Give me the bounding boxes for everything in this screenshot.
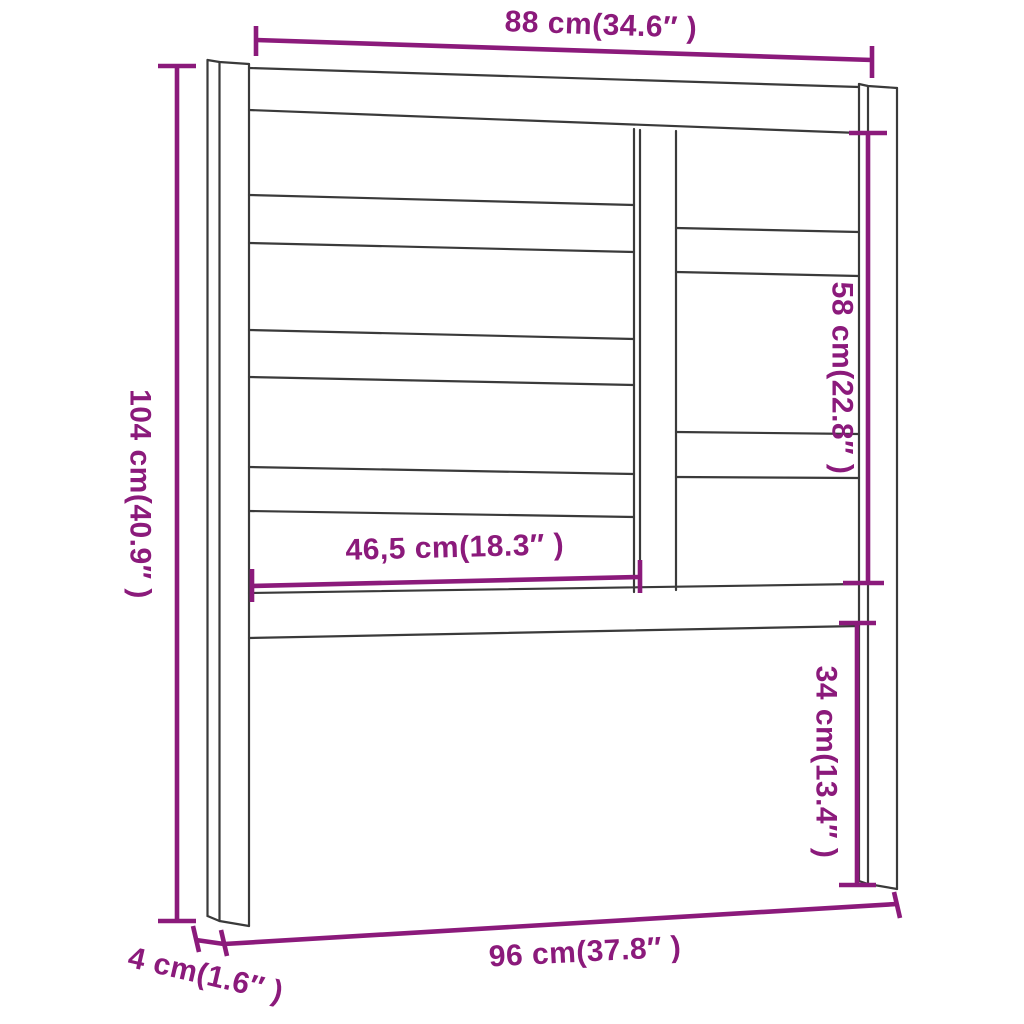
left-slats <box>249 195 634 517</box>
dim-middle-width-label: 46,5 cm(18.3″ ) <box>345 528 564 567</box>
top-rail <box>249 68 859 133</box>
middle-stile <box>634 129 676 592</box>
dim-right-lower-height: 34 cm(13.4″ ) <box>810 623 877 885</box>
headboard-dimension-diagram: 88 cm(34.6″ ) 104 cm(40.9″ ) 58 cm(22.8″… <box>0 0 1024 1024</box>
dim-top-width-label: 88 cm(34.6″ ) <box>504 5 698 45</box>
left-post <box>208 60 250 926</box>
dim-right-upper-height: 58 cm(22.8″ ) <box>826 133 888 583</box>
dim-right-upper-height-label: 58 cm(22.8″ ) <box>826 282 859 475</box>
dim-right-lower-height-label: 34 cm(13.4″ ) <box>810 666 843 859</box>
dim-left-height-label: 104 cm(40.9″ ) <box>124 389 157 599</box>
dim-bottom-width: 96 cm(37.8″ ) 4 cm(1.6″ ) <box>125 892 900 1009</box>
dim-left-height: 104 cm(40.9″ ) <box>124 66 197 921</box>
right-post <box>859 84 897 889</box>
middle-rail <box>249 584 859 638</box>
dim-bottom-width-label: 96 cm(37.8″ ) <box>488 930 682 973</box>
dim-top-width: 88 cm(34.6″ ) <box>256 5 872 78</box>
headboard-outline <box>208 60 898 926</box>
diagram-canvas: 88 cm(34.6″ ) 104 cm(40.9″ ) 58 cm(22.8″… <box>0 0 1024 1024</box>
dim-leg-depth-label: 4 cm(1.6″ ) <box>125 941 287 1009</box>
